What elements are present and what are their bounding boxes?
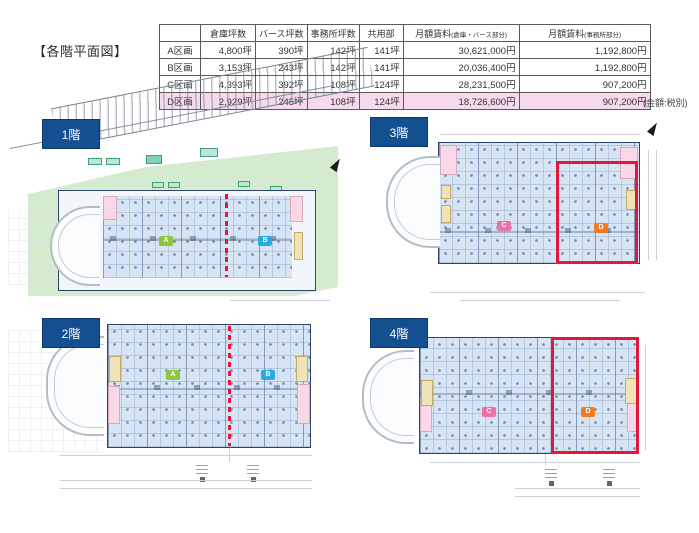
dimension-line	[515, 488, 640, 489]
dimension-line	[60, 488, 312, 489]
floor-label-3f: 3階	[370, 117, 428, 147]
planter	[238, 181, 250, 187]
stair-core	[441, 185, 451, 199]
planter	[168, 182, 180, 188]
document-page: 【各階平面図】 倉庫坪数 バース坪数 事務所坪数 共用部 月額賃料(倉庫・バース…	[0, 0, 699, 533]
dimension-line	[440, 134, 640, 135]
table-header-row: 倉庫坪数 バース坪数 事務所坪数 共用部 月額賃料(倉庫・バース部分) 月額賃料…	[160, 25, 651, 42]
machinery-symbols	[114, 385, 304, 390]
page-title: 【各階平面図】	[33, 41, 128, 60]
section-chip-a: A	[166, 370, 180, 380]
section-divider-red	[228, 326, 231, 446]
dimension-line	[645, 345, 646, 450]
dimension-line	[230, 300, 330, 301]
office-zone	[297, 384, 310, 424]
dimension-line	[430, 292, 645, 293]
dimension-line	[60, 455, 312, 456]
office-zone	[108, 386, 120, 424]
annotation-marks	[247, 462, 259, 482]
north-arrow-icon	[647, 121, 661, 136]
office-zone	[103, 196, 117, 220]
planter	[88, 158, 102, 165]
section-chip-c: C	[497, 221, 511, 231]
planter	[106, 158, 120, 165]
corner-cell	[160, 25, 201, 42]
dimension-line	[515, 496, 640, 497]
dimension-line	[60, 480, 312, 481]
stair-core	[441, 205, 451, 223]
tax-note: (金額:税別)	[643, 96, 688, 109]
truck-ramp	[386, 156, 440, 248]
section-chip-c: C	[482, 407, 496, 417]
col-common: 共用部	[359, 25, 403, 42]
section-chip-a: A	[159, 236, 173, 246]
annotation-marks	[545, 466, 557, 486]
col-warehouse: 倉庫坪数	[201, 25, 256, 42]
stair-core	[294, 232, 303, 260]
dimension-line	[430, 462, 640, 463]
planter	[152, 182, 164, 188]
dimension-line	[460, 300, 620, 301]
planter	[200, 148, 218, 157]
highlight-box-d	[556, 161, 638, 264]
highlight-box-d	[551, 337, 639, 454]
dimension-line	[656, 150, 657, 260]
section-divider-red	[225, 194, 228, 277]
col-rent-office: 月額賃料(事務所部分)	[519, 25, 650, 42]
dimension-line	[648, 150, 649, 260]
section-chip-b: B	[258, 236, 272, 246]
col-office: 事務所坪数	[307, 25, 359, 42]
floor-label-4f: 4階	[370, 318, 428, 348]
section-chip-b: B	[261, 370, 275, 380]
col-rent-warehouse: 月額賃料(倉庫・バース部分)	[403, 25, 519, 42]
truck-ramp	[362, 350, 414, 444]
floor-label-2f: 2階	[42, 318, 100, 348]
col-berth: バース坪数	[256, 25, 308, 42]
office-zone	[440, 145, 457, 175]
table-row-a: A区画 4,800坪 390坪 142坪 141坪 30,621,000円 1,…	[160, 42, 651, 59]
stair-core	[109, 356, 121, 382]
dimension-line	[545, 454, 546, 466]
annotation-marks	[196, 462, 208, 482]
floor-label-1f: 1階	[42, 119, 100, 149]
stair-core	[296, 356, 308, 382]
annotation-marks	[603, 466, 615, 486]
stair-core	[421, 380, 433, 406]
planter	[146, 155, 162, 164]
office-zone	[290, 196, 303, 222]
